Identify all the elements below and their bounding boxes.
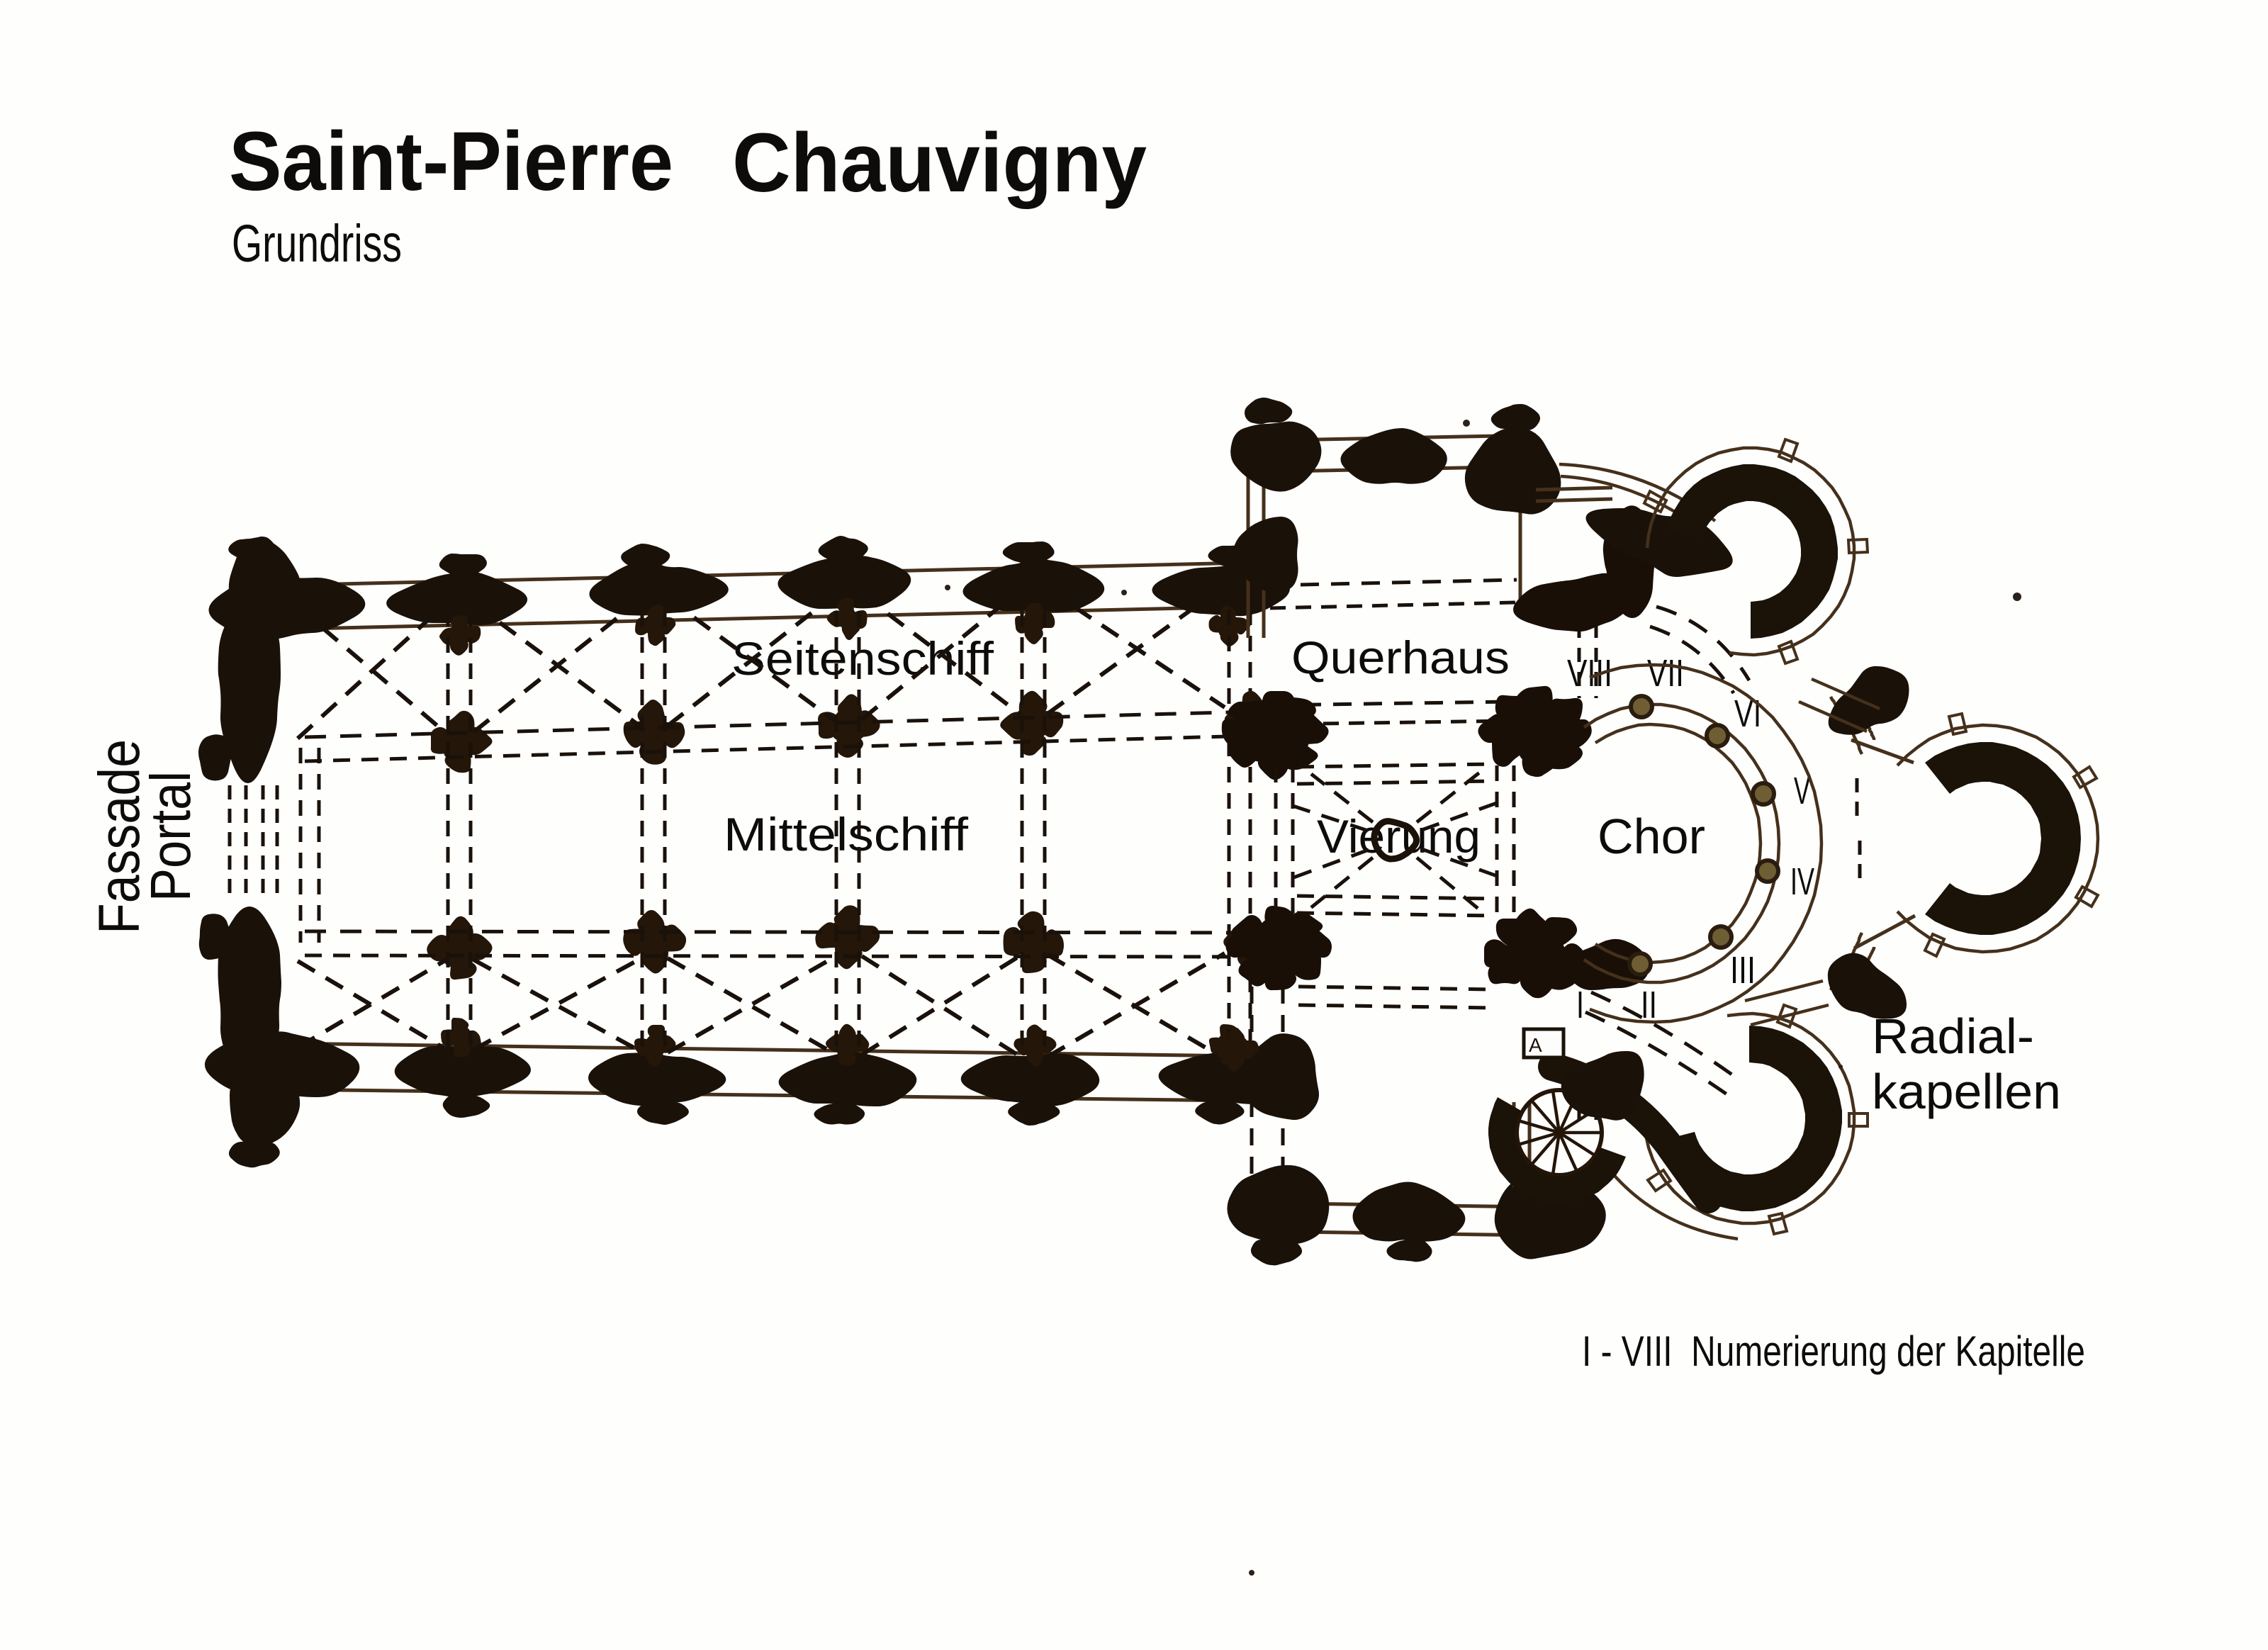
svg-text:I - VIII Numerierung der Kapi: I - VIII Numerierung der Kapitelle (1582, 1328, 2085, 1375)
svg-text:Chauvigny: Chauvigny (732, 116, 1147, 210)
svg-text:III: III (1730, 949, 1756, 992)
svg-text:I: I (1576, 984, 1584, 1026)
svg-text:IV: IV (1790, 860, 1814, 903)
svg-text:VI: VI (1734, 692, 1761, 735)
svg-text:VII: VII (1647, 652, 1684, 695)
svg-text:Seitenschiff: Seitenschiff (731, 632, 994, 685)
svg-text:II: II (1641, 984, 1657, 1026)
svg-text:Saint-Pierre: Saint-Pierre (229, 115, 673, 208)
svg-text:Portal: Portal (139, 771, 202, 902)
svg-text:Chor: Chor (1598, 809, 1705, 864)
svg-text:Grundriss: Grundriss (232, 214, 402, 273)
svg-text:Querhaus: Querhaus (1291, 632, 1510, 683)
svg-text:kapellen: kapellen (1872, 1064, 2061, 1119)
svg-text:Mittelschiff: Mittelschiff (724, 808, 969, 860)
svg-text:A: A (1529, 1034, 1542, 1056)
